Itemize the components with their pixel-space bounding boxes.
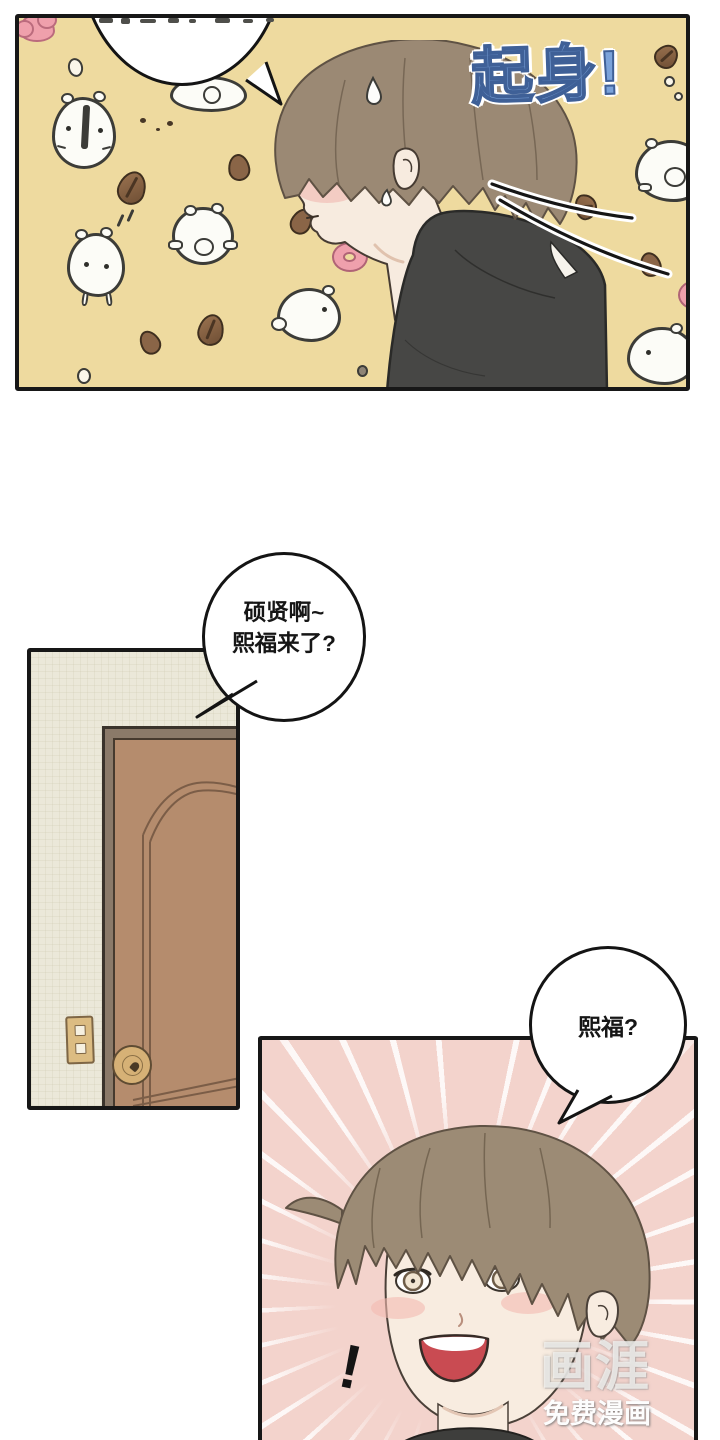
boy-blush — [371, 1297, 425, 1319]
sfx-label: 起身! — [470, 38, 623, 112]
greeting-text: 硕贤啊~ 熙福来了? — [205, 597, 363, 659]
hamster-ear — [99, 226, 114, 239]
egg-pattern — [77, 368, 91, 384]
question-text: 熙福? — [578, 1008, 638, 1042]
hamster-paw — [223, 240, 238, 250]
hamster-ring — [194, 238, 214, 256]
hamster-leg — [105, 292, 113, 307]
tick-mark — [116, 214, 124, 227]
panel-bedroom: 起身! — [15, 14, 690, 391]
hamster-ring — [203, 86, 221, 104]
bubble-tail — [186, 684, 266, 729]
hamster-ear — [75, 229, 88, 240]
seed-pattern — [226, 153, 252, 183]
hamster-stripe — [81, 105, 90, 149]
hamster-tail — [688, 358, 690, 371]
pink-flower-pattern — [19, 14, 55, 42]
greeting-line2: 熙福来了? — [205, 628, 363, 659]
hamster-eye — [104, 264, 109, 269]
watermark-caption: 免费漫画 — [543, 1392, 651, 1431]
hair-flick — [286, 1198, 342, 1224]
egg-pattern — [66, 57, 85, 79]
motion-lines — [474, 148, 690, 303]
tick-mark — [126, 209, 134, 222]
sfx-text: 起身! — [469, 21, 623, 116]
hamster-ear — [92, 89, 108, 103]
seed-pattern — [135, 327, 165, 359]
hamster-eye — [66, 126, 71, 131]
switch-button — [74, 1025, 85, 1036]
switch-button — [75, 1043, 86, 1054]
hamster-ear — [210, 202, 225, 216]
egg-pattern — [674, 92, 683, 101]
egg-pattern — [664, 76, 675, 87]
bubble-tail — [548, 1080, 623, 1135]
hamster-ear — [61, 93, 74, 104]
bubble-tail — [243, 66, 313, 136]
hamster-paw — [168, 240, 183, 250]
hamster-pattern — [52, 97, 116, 169]
hamster-pattern — [172, 207, 234, 265]
door-knob — [112, 1045, 152, 1085]
boy-shirt — [392, 1428, 545, 1440]
comic-page: 起身! 硕贤啊~ 熙福来了? — [0, 0, 720, 1440]
dots-pattern — [140, 118, 146, 123]
hamster-eye — [84, 262, 89, 267]
light-switch — [65, 1016, 95, 1065]
hamster-ear — [184, 205, 197, 216]
seed-pattern — [195, 311, 228, 348]
seed-pattern — [113, 167, 151, 209]
hamster-pattern — [67, 233, 125, 297]
boy-ear — [394, 148, 419, 188]
hamster-eye — [98, 128, 103, 133]
hamster-whisker — [57, 145, 66, 149]
watermark-logo: 画涯 — [540, 1322, 650, 1401]
hamster-ear — [669, 322, 684, 335]
hamster-leg — [81, 292, 89, 307]
greeting-line1: 硕贤啊~ — [205, 597, 363, 628]
boy-pupil — [411, 1279, 415, 1283]
keyhole — [129, 1060, 141, 1072]
hamster-whisker — [102, 146, 111, 150]
